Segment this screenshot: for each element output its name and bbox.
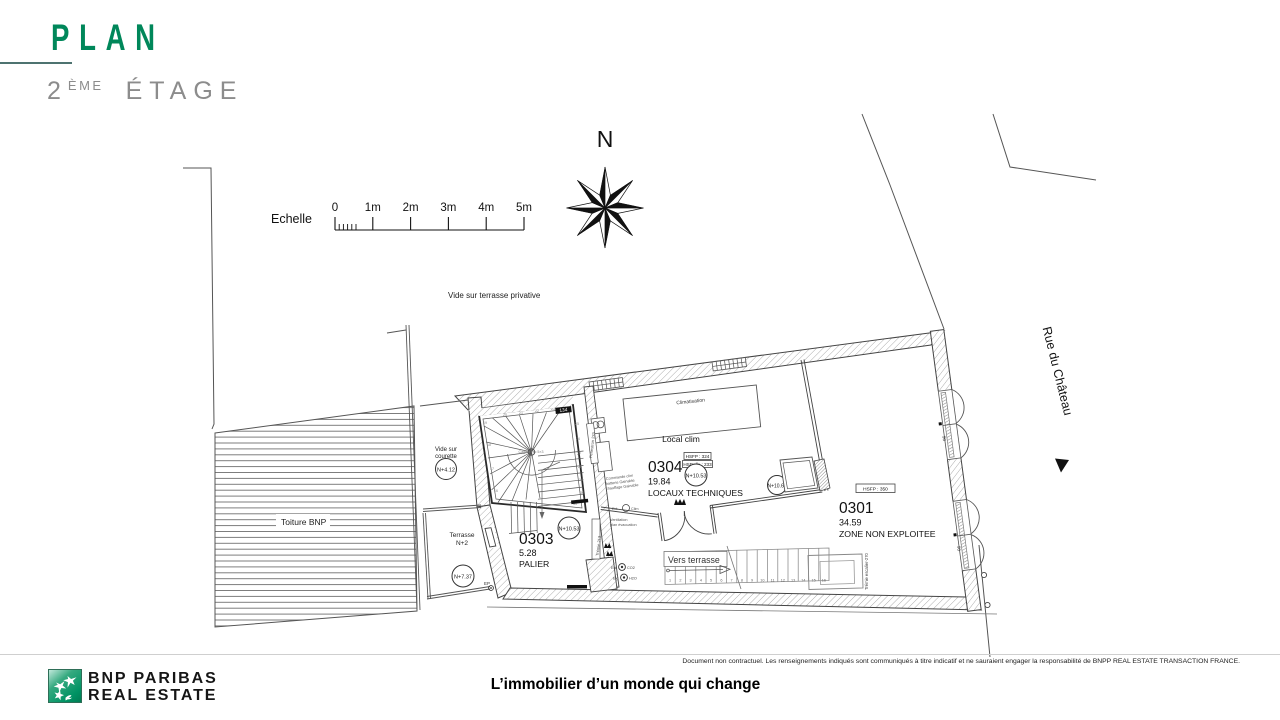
svg-text:CO2: CO2 xyxy=(627,566,635,570)
svg-text:Ext: Ext xyxy=(613,577,619,581)
svg-text:N+10.53: N+10.53 xyxy=(686,474,707,480)
svg-text:34.59: 34.59 xyxy=(839,518,862,528)
svg-text:Cage d'esc 5×3: Cage d'esc 5×3 xyxy=(519,450,544,454)
svg-text:9: 9 xyxy=(751,579,753,583)
svg-text:Terrasse: Terrasse xyxy=(450,532,475,539)
svg-text:Vide sur terrasse privative: Vide sur terrasse privative xyxy=(448,291,541,300)
svg-text:N+7.37: N+7.37 xyxy=(454,575,472,581)
svg-text:4m: 4m xyxy=(478,202,494,214)
svg-text:5m: 5m xyxy=(516,202,532,214)
svg-text:2m: 2m xyxy=(403,202,419,214)
svg-text:Trémie escalier-270: Trémie escalier-270 xyxy=(864,552,869,590)
svg-text:4: 4 xyxy=(700,579,702,583)
svg-text:19: 19 xyxy=(483,421,487,425)
svg-text:0301: 0301 xyxy=(839,500,873,517)
svg-text:19.84: 19.84 xyxy=(648,477,671,487)
svg-text:N+10.53: N+10.53 xyxy=(559,527,580,533)
svg-text:26: 26 xyxy=(576,437,580,441)
svg-text:Rue du Château: Rue du Château xyxy=(1040,325,1076,417)
svg-text:Vide sur: Vide sur xyxy=(435,447,457,453)
svg-text:N+2: N+2 xyxy=(456,540,468,547)
svg-text:0304: 0304 xyxy=(648,459,683,476)
svg-text:1m: 1m xyxy=(365,202,381,214)
svg-text:plan évacuation: plan évacuation xyxy=(610,523,637,527)
svg-text:134: 134 xyxy=(559,407,568,414)
svg-text:H2O: H2O xyxy=(629,577,637,581)
svg-text:10: 10 xyxy=(760,579,764,583)
svg-text:Toiture BNP: Toiture BNP xyxy=(281,517,327,527)
svg-text:LOCAUX TECHNIQUES: LOCAUX TECHNIQUES xyxy=(648,488,743,498)
svg-text:8: 8 xyxy=(741,579,743,583)
svg-text:Vers terrasse: Vers terrasse xyxy=(668,555,720,565)
svg-text:16: 16 xyxy=(822,579,826,583)
svg-text:0303: 0303 xyxy=(519,531,553,548)
svg-text:Echelle: Echelle xyxy=(271,212,312,226)
svg-text:18: 18 xyxy=(487,443,491,447)
svg-text:3: 3 xyxy=(690,579,692,583)
svg-text:HSFP : 324: HSFP : 324 xyxy=(686,454,710,459)
svg-text:1: 1 xyxy=(669,579,671,583)
svg-text:Ventilation: Ventilation xyxy=(610,518,628,522)
svg-text:20: 20 xyxy=(503,413,507,417)
svg-text:5: 5 xyxy=(710,579,712,583)
svg-text:14: 14 xyxy=(801,579,805,583)
svg-text:0: 0 xyxy=(332,202,338,214)
svg-text:27: 27 xyxy=(577,452,581,456)
svg-text:13: 13 xyxy=(791,579,795,583)
svg-text:ZONE NON EXPLOITEE: ZONE NON EXPLOITEE xyxy=(839,529,936,539)
svg-text:PALIER: PALIER xyxy=(519,559,549,569)
svg-text:29: 29 xyxy=(579,478,583,482)
svg-text:EP: EP xyxy=(484,581,490,586)
svg-text:courette: courette xyxy=(435,454,457,460)
svg-text:3m: 3m xyxy=(440,202,456,214)
svg-text:7: 7 xyxy=(731,579,733,583)
svg-text:N: N xyxy=(597,126,614,152)
svg-text:17: 17 xyxy=(490,467,494,471)
svg-text:N+4.12: N+4.12 xyxy=(437,468,455,474)
svg-text:30: 30 xyxy=(580,491,584,495)
svg-text:11: 11 xyxy=(771,579,775,583)
svg-text:HSFP : 350: HSFP : 350 xyxy=(863,487,888,493)
svg-text:Local clim: Local clim xyxy=(662,434,700,444)
svg-text:Ext: Ext xyxy=(611,566,617,570)
svg-text:15: 15 xyxy=(811,579,815,583)
svg-text:25: 25 xyxy=(575,422,579,426)
svg-text:Clim: Clim xyxy=(631,507,639,511)
svg-text:2: 2 xyxy=(679,579,681,583)
svg-text:6: 6 xyxy=(720,579,722,583)
svg-text:28: 28 xyxy=(578,465,582,469)
svg-text:16: 16 xyxy=(494,489,498,493)
svg-text:5.28: 5.28 xyxy=(519,548,537,558)
svg-text:12: 12 xyxy=(781,579,785,583)
